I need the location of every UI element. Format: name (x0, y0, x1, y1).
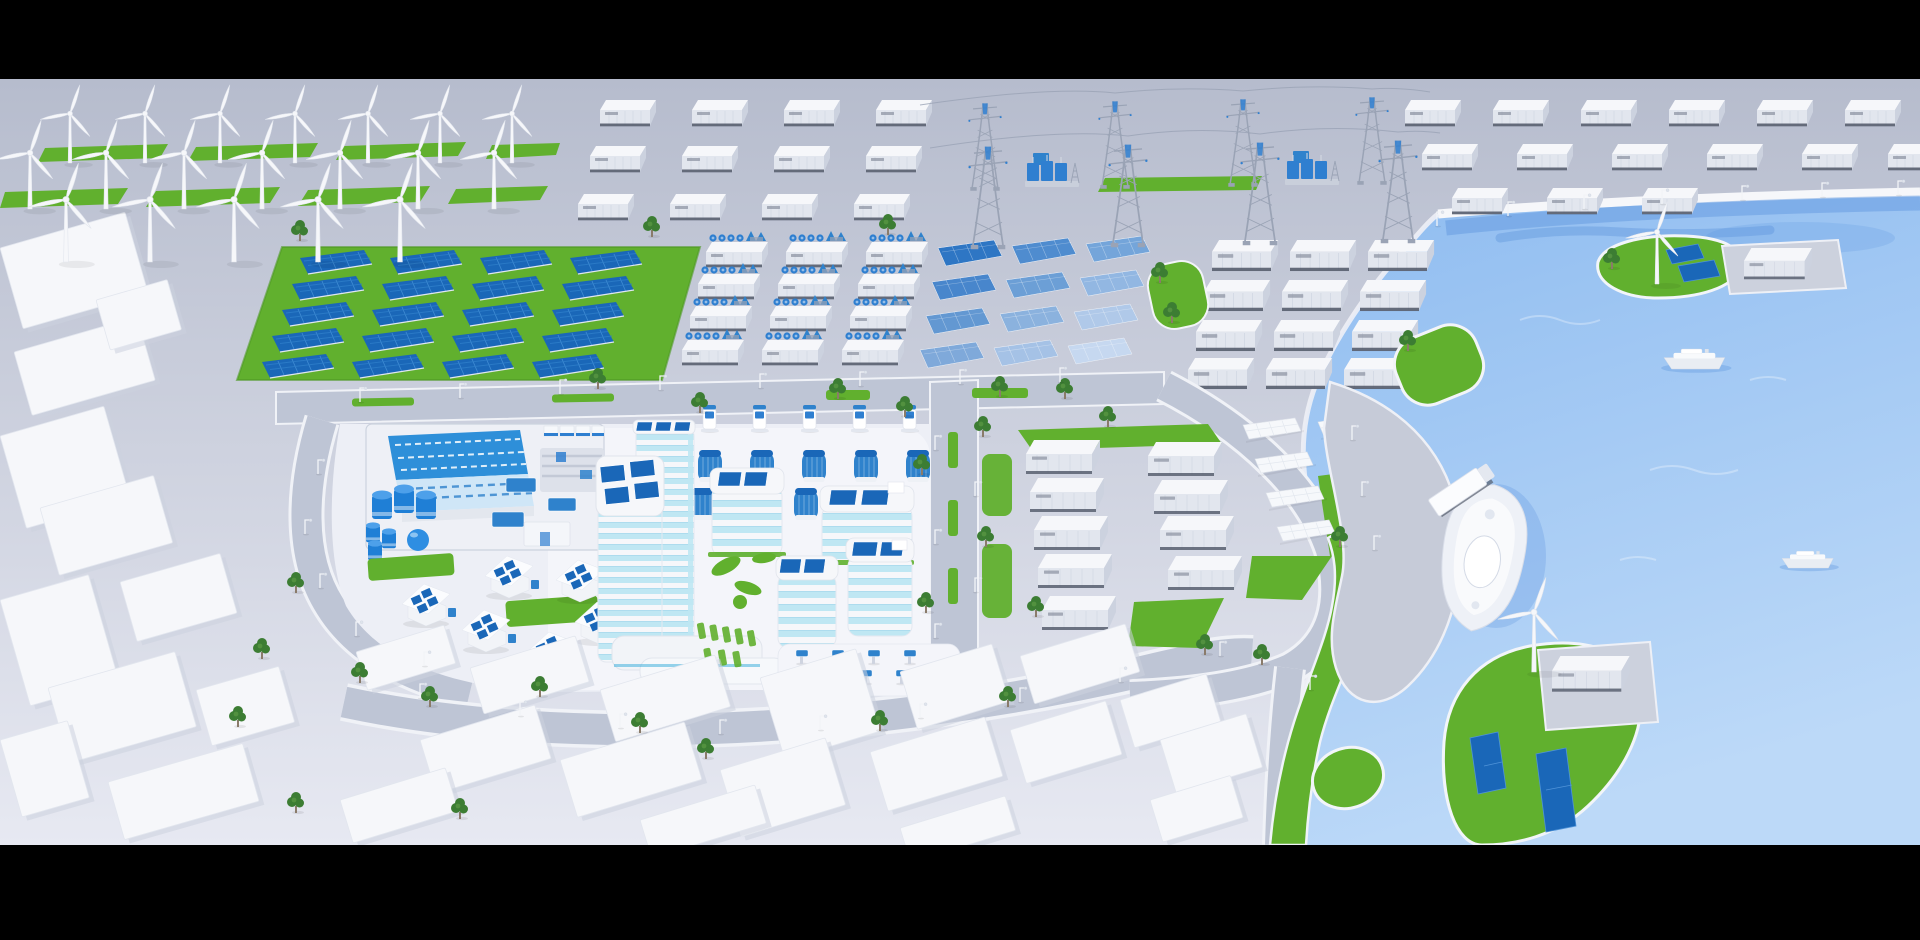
rooftop-hvac (892, 540, 907, 550)
battery-container (1282, 280, 1348, 311)
solar-pod (802, 450, 826, 482)
process-machinery (540, 448, 604, 492)
electrolyzer-unit (682, 329, 744, 365)
electrolyzer-unit (698, 263, 760, 299)
battery-container (1612, 144, 1668, 170)
battery-container (1517, 144, 1573, 170)
battery-container (1669, 100, 1725, 126)
battery-container (774, 146, 830, 172)
battery-container (784, 100, 840, 126)
warehouse-container (1026, 440, 1100, 474)
battery-container (1642, 188, 1698, 214)
electrolyzer-unit (770, 295, 832, 331)
battery-container (692, 100, 748, 126)
battery-container (600, 100, 656, 126)
battery-container (670, 194, 726, 220)
storage-tank (394, 485, 414, 514)
electrolyzer-unit (866, 231, 928, 267)
industrial-plant (366, 424, 604, 560)
battery-container (1845, 100, 1901, 126)
solar-farm (237, 247, 700, 380)
sphere-tank (407, 529, 429, 551)
battery-container (1204, 280, 1270, 311)
warehouse-container (1148, 442, 1222, 476)
electrolyzer-unit (706, 231, 768, 267)
battery-container (1547, 188, 1603, 214)
battery-container (682, 146, 738, 172)
electrolyzer-unit (786, 231, 848, 267)
canopy (492, 512, 524, 527)
scene-svg (0, 0, 1920, 940)
battery-container (1581, 100, 1637, 126)
battery-container (866, 146, 922, 172)
battery-container (1266, 358, 1332, 389)
battery-container (1196, 320, 1262, 351)
electrolyzer-unit (762, 329, 824, 365)
electrolyzer-unit (858, 263, 920, 299)
rendered-scene (0, 0, 1920, 940)
solar-pod (854, 450, 878, 482)
island-container (1552, 656, 1630, 692)
island-container (1744, 248, 1812, 279)
letterbox-top (0, 0, 1920, 79)
rooftop-hvac (888, 482, 904, 493)
battery-container (578, 194, 634, 220)
battery-container (1405, 100, 1461, 126)
battery-container (1888, 144, 1920, 170)
battery-container (1493, 100, 1549, 126)
electrolyzer-unit (778, 263, 840, 299)
warehouse-container (1160, 516, 1234, 550)
storage-tank (416, 491, 436, 520)
battery-container (1188, 358, 1254, 389)
battery-container (1290, 240, 1356, 271)
battery-container (1360, 280, 1426, 311)
solar-pod (794, 488, 818, 520)
battery-container (1707, 144, 1763, 170)
battery-container (590, 146, 646, 172)
warehouse-container (1042, 596, 1116, 630)
battery-container (1422, 144, 1478, 170)
battery-container (1802, 144, 1858, 170)
canopy (548, 498, 576, 511)
battery-container (762, 194, 818, 220)
battery-container (1757, 100, 1813, 126)
warehouse-container (1154, 480, 1228, 514)
storage-tank (372, 491, 392, 520)
electrolyzer-unit (690, 295, 752, 331)
warehouse-container (1038, 554, 1112, 588)
warehouse-container (1168, 556, 1242, 590)
battery-container (1274, 320, 1340, 351)
canopy (506, 478, 536, 492)
warehouse-container (1030, 478, 1104, 512)
electrolyzer-unit (850, 295, 912, 331)
battery-container (876, 100, 932, 126)
electrolyzer-unit (842, 329, 904, 365)
storage-tank (366, 522, 380, 542)
warehouse-container (1034, 516, 1108, 550)
storage-tank (368, 540, 382, 560)
letterbox-bottom (0, 845, 1920, 940)
battery-container (1368, 240, 1434, 271)
storage-tank (382, 528, 396, 548)
battery-container (1452, 188, 1508, 214)
electrolyzer-yard (682, 231, 928, 365)
battery-container (854, 194, 910, 220)
transformer-units (544, 426, 604, 436)
